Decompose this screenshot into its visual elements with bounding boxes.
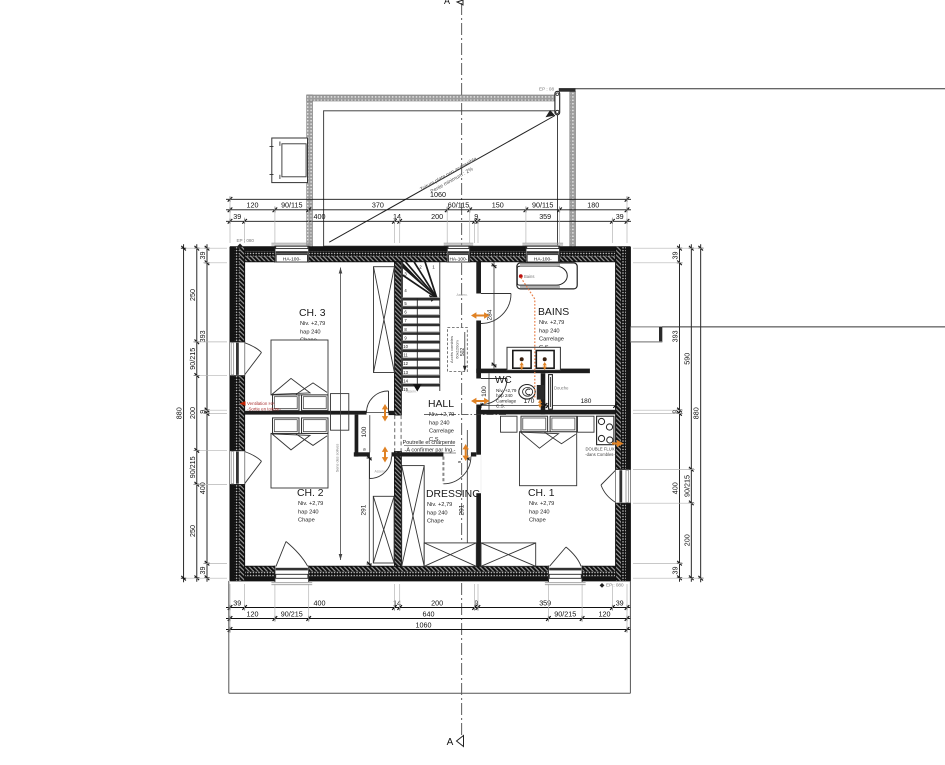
svg-text:Sens des solives: Sens des solives [335,444,339,473]
svg-text:hap 240: hap 240 [429,420,450,426]
svg-text:180: 180 [587,201,599,210]
svg-text:EP : 080: EP : 080 [236,238,254,243]
svg-text:EP : 080: EP : 080 [606,583,624,588]
svg-text:120: 120 [247,201,259,210]
svg-text:hap 240: hap 240 [427,510,448,516]
svg-text:-À confirmer par Ing.-: -À confirmer par Ing.- [405,447,456,454]
svg-text:Chape: Chape [427,519,444,525]
svg-text:Chape: Chape [529,518,546,524]
svg-text:90/215: 90/215 [188,348,197,370]
svg-text:400: 400 [314,212,326,221]
svg-text:hap 240: hap 240 [298,509,319,515]
svg-text:400: 400 [314,598,326,607]
svg-text:HA-100-: HA-100- [534,256,552,262]
svg-text:291: 291 [459,504,466,515]
svg-text:WC: WC [495,375,512,386]
svg-text:Douche: Douche [554,386,569,391]
svg-text:39: 39 [671,252,680,260]
svg-text:39: 39 [198,567,207,575]
svg-text:200: 200 [682,534,691,546]
svg-text:Asserv.: Asserv. [405,390,416,394]
svg-text:90/215: 90/215 [554,609,576,618]
svg-text:180: 180 [581,398,592,405]
svg-text:250: 250 [188,289,197,301]
svg-text:400: 400 [671,482,680,494]
svg-text:10: 10 [403,344,408,349]
svg-text:1060: 1060 [416,620,432,629]
svg-text:EP : 08: EP : 08 [539,87,554,92]
svg-text:Asserv.: Asserv. [374,470,385,474]
svg-text:hap 240: hap 240 [529,509,550,515]
svg-text:200: 200 [431,212,443,221]
svg-text:Ventilation HA: Ventilation HA [247,401,275,406]
svg-text:hap 240: hap 240 [300,329,321,335]
svg-text:Niv. +2,79: Niv. +2,79 [298,501,323,507]
svg-text:C.S.: C.S. [496,404,505,409]
svg-text:14: 14 [403,378,408,383]
svg-text:CH. 3: CH. 3 [299,308,326,319]
svg-text:hap 240: hap 240 [539,328,560,334]
svg-text:-Sortie en toiture-: -Sortie en toiture- [247,407,281,412]
svg-text:39: 39 [233,212,241,221]
svg-text:39: 39 [671,567,680,575]
svg-text:880: 880 [175,407,184,419]
svg-text:DRESSING: DRESSING [426,489,480,500]
svg-text:60/115: 60/115 [448,201,469,210]
svg-text:640: 640 [423,609,435,618]
svg-text:880: 880 [692,407,701,419]
svg-text:11: 11 [403,353,408,358]
svg-text:12: 12 [403,361,408,366]
svg-text:Carrelage: Carrelage [539,337,564,343]
svg-text:90/215: 90/215 [281,609,303,618]
svg-text:Niv. +2,79: Niv. +2,79 [300,321,325,327]
svg-text:39: 39 [616,598,624,607]
svg-text:393: 393 [198,330,207,342]
svg-text:502: 502 [460,348,466,357]
svg-text:359: 359 [539,598,551,607]
svg-text:250: 250 [188,525,197,537]
svg-text:291: 291 [361,504,368,515]
svg-text:90/215: 90/215 [682,475,691,497]
svg-text:370: 370 [372,201,384,210]
svg-text:HALL: HALL [428,399,454,410]
svg-text:Niv. +2,79: Niv. +2,79 [529,501,554,507]
svg-text:39: 39 [198,252,207,260]
svg-text:CH. 1: CH. 1 [528,488,555,499]
svg-text:A: A [447,737,454,748]
svg-text:Accès combles: Accès combles [449,336,454,363]
svg-text:400: 400 [198,482,207,494]
svg-text:HA-100-: HA-100- [449,256,467,262]
svg-text:39: 39 [233,598,241,607]
svg-text:90/115: 90/115 [281,201,302,210]
svg-text:-dans Combles-: -dans Combles- [585,452,615,457]
svg-text:150: 150 [492,201,504,210]
svg-text:100: 100 [481,386,488,397]
svg-text:120: 120 [599,609,611,618]
svg-text:DOUBLE FLUX: DOUBLE FLUX [585,447,614,452]
svg-text:Niv. +2,79: Niv. +2,79 [539,320,564,326]
svg-text:359: 359 [539,212,551,221]
svg-text:Chape: Chape [298,518,315,524]
svg-text:100: 100 [361,426,368,437]
svg-text:HA-100-: HA-100- [283,256,301,262]
svg-text:39: 39 [616,212,624,221]
svg-text:120: 120 [247,609,259,618]
svg-text:200: 200 [431,598,443,607]
svg-text:Bains: Bains [524,274,534,279]
svg-text:Niv. +2,79: Niv. +2,79 [429,412,454,418]
svg-text:590: 590 [682,353,691,365]
svg-text:A: A [444,0,450,6]
svg-text:13: 13 [403,370,408,375]
svg-text:Poutrelle et charpente: Poutrelle et charpente [403,440,456,446]
svg-text:90/215: 90/215 [188,456,197,478]
svg-text:Niv. +2,79: Niv. +2,79 [427,502,452,508]
svg-text:Asserv.: Asserv. [456,293,467,297]
svg-text:393: 393 [671,330,680,342]
svg-text:90/115: 90/115 [532,201,553,210]
svg-text:200: 200 [188,407,197,419]
svg-text:Carrelage: Carrelage [429,429,454,435]
svg-text:1060: 1060 [430,190,446,199]
svg-text:CH. 2: CH. 2 [297,488,324,499]
svg-text:BAINS: BAINS [538,307,569,318]
